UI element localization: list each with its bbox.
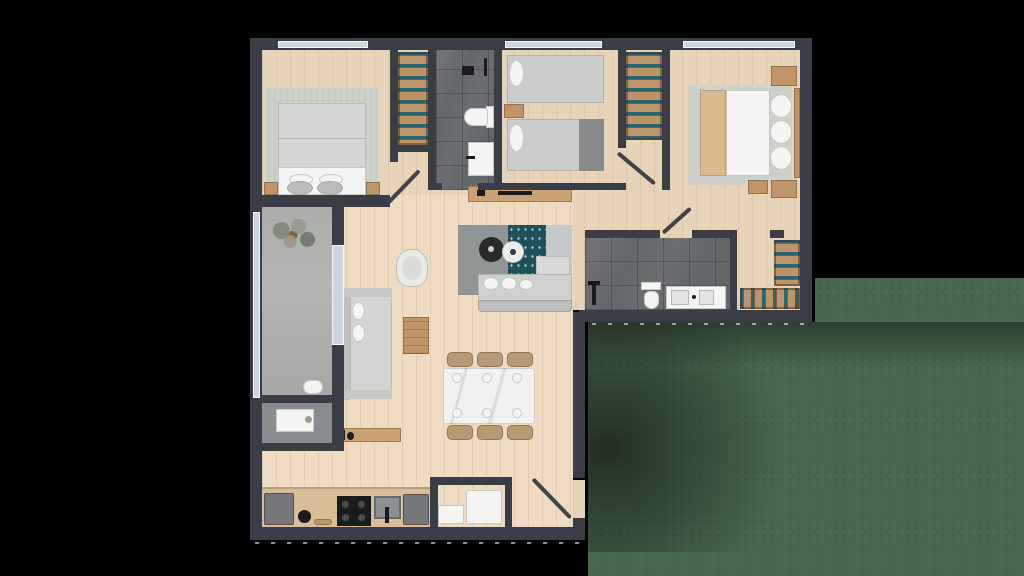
refrigerator [264,493,294,525]
lawn [588,322,1024,576]
wall-bath-closet-divider [730,238,737,310]
round-table-white-item [510,249,516,255]
wall-bedroom-2-south [502,183,626,190]
master-nightstand-bottom [771,180,797,198]
sofa-pillow-3 [519,279,533,290]
bathroom-1-shower-bar [484,58,487,76]
wall-bedroom-1-south [250,195,390,207]
wall-bathroom-1-south-a [428,183,442,190]
window-bedroom-2 [505,41,602,48]
master-pillow-1 [770,94,792,118]
wall-master-bath-north-a [585,230,660,238]
round-table-dark-item [488,246,494,252]
kettle [298,510,311,523]
wall-master-west [662,50,670,190]
bedroom-2-bed-top-pillow [509,60,524,87]
dining-chair-3 [507,352,533,367]
window-master [683,41,795,48]
sofa-pillow-2 [501,277,517,290]
wall-exterior-right-lower-b [573,518,585,540]
bathroom-1-shower-control [462,66,474,75]
master-nightstand-top [771,66,797,86]
media-console-soundbar [498,191,532,195]
wall-closet-north-stub [770,230,784,238]
place-setting-6 [512,408,522,418]
bedroom-2-closet-hangers [626,52,662,140]
kitchen-faucet [385,507,389,523]
place-setting-5 [482,408,492,418]
walkin-closet-rail-east [774,240,800,286]
bedroom-1-pillow-left [287,181,313,195]
balcony-sliding-door-glass [332,245,344,345]
master-shower-bar [592,285,596,305]
place-setting-2 [482,373,492,383]
dining-chair-4 [447,425,473,440]
wall-exterior-right-upper [800,38,812,322]
wall-master-bath-north-b [692,230,737,238]
bedroom-1-nightstand-right [366,182,380,195]
wall-exterior-right-lower-a [573,312,585,478]
wall-closet-1-south [390,145,428,152]
master-toilet-tank [641,282,661,290]
entry-threshold [573,480,585,518]
master-bed-duvet [726,90,770,176]
master-dresser [748,180,768,194]
balcony-stool [303,380,323,394]
wall-utility-north [250,395,344,403]
bathroom-1-sink-vanity [468,142,494,176]
wall-entry-closet-east [505,477,512,527]
walkin-closet-rail-south [740,288,800,309]
bathroom-1-faucet [466,156,475,159]
dining-chair-1 [447,352,473,367]
armchair-seat [402,256,422,280]
oven [403,494,429,525]
bedroom-2-bed-throw [579,119,604,171]
floor-plan-render [0,0,1024,576]
paving-dashes-south [255,542,579,544]
second-sofa-pillow-2 [352,324,365,342]
wood-coffee-table [403,317,429,354]
bedroom-1-pillow-right [317,181,343,195]
wall-entry-closet-west [430,477,438,527]
wall-exterior-bottom [250,527,579,540]
master-pillow-2 [770,120,792,144]
bathroom-1-toilet-bowl [464,108,488,126]
dining-chair-6 [507,425,533,440]
second-sofa-arm-top [338,288,392,297]
bedroom-1-closet-hangers [398,52,428,145]
master-toilet-bowl [644,291,659,309]
sofa-pillow-1 [483,277,499,290]
media-console-item [477,190,485,196]
window-balcony-west [253,212,260,398]
window-bedroom-1 [278,41,368,48]
wall-bathroom-1-west [428,50,436,190]
washing-machine-dial [305,416,312,423]
wall-exterior-bottom-upper-wing [579,310,812,322]
master-vanity-sink-right [699,290,714,305]
wall-bathroom-1-east [494,50,502,190]
paving-dashes-east-wing [592,323,806,325]
master-pillow-3 [770,146,792,170]
place-setting-1 [452,373,462,383]
second-sofa-arm-bottom [338,390,392,399]
master-bed-throw [700,90,726,176]
bedroom-1-bed-fold [278,138,366,139]
dining-chair-5 [477,425,503,440]
place-setting-3 [512,373,522,383]
cutting-board [314,519,332,525]
master-vanity-faucet [692,295,696,299]
bedroom-1-nightstand-left [264,182,278,195]
lawn-upper-right [815,278,1024,322]
dining-chair-2 [477,352,503,367]
shelf-canister-2 [347,432,354,440]
cooktop [337,496,371,526]
sofa-back [478,300,572,312]
entry-washer [466,490,502,524]
second-sofa-pillow-1 [352,302,365,320]
wall-utility-south [250,443,344,451]
wall-bedroom-2-east [618,50,626,148]
wall-balcony-divider-top [332,207,344,245]
master-vanity-sink-left [671,290,689,305]
entry-storage-box [438,505,464,524]
bedroom-2-nightstand [504,104,524,118]
place-setting-4 [452,408,462,418]
bedroom-2-bed-bottom-pillow [509,124,524,152]
balcony-plant [264,213,322,257]
wall-entry-closet-north [430,477,512,485]
